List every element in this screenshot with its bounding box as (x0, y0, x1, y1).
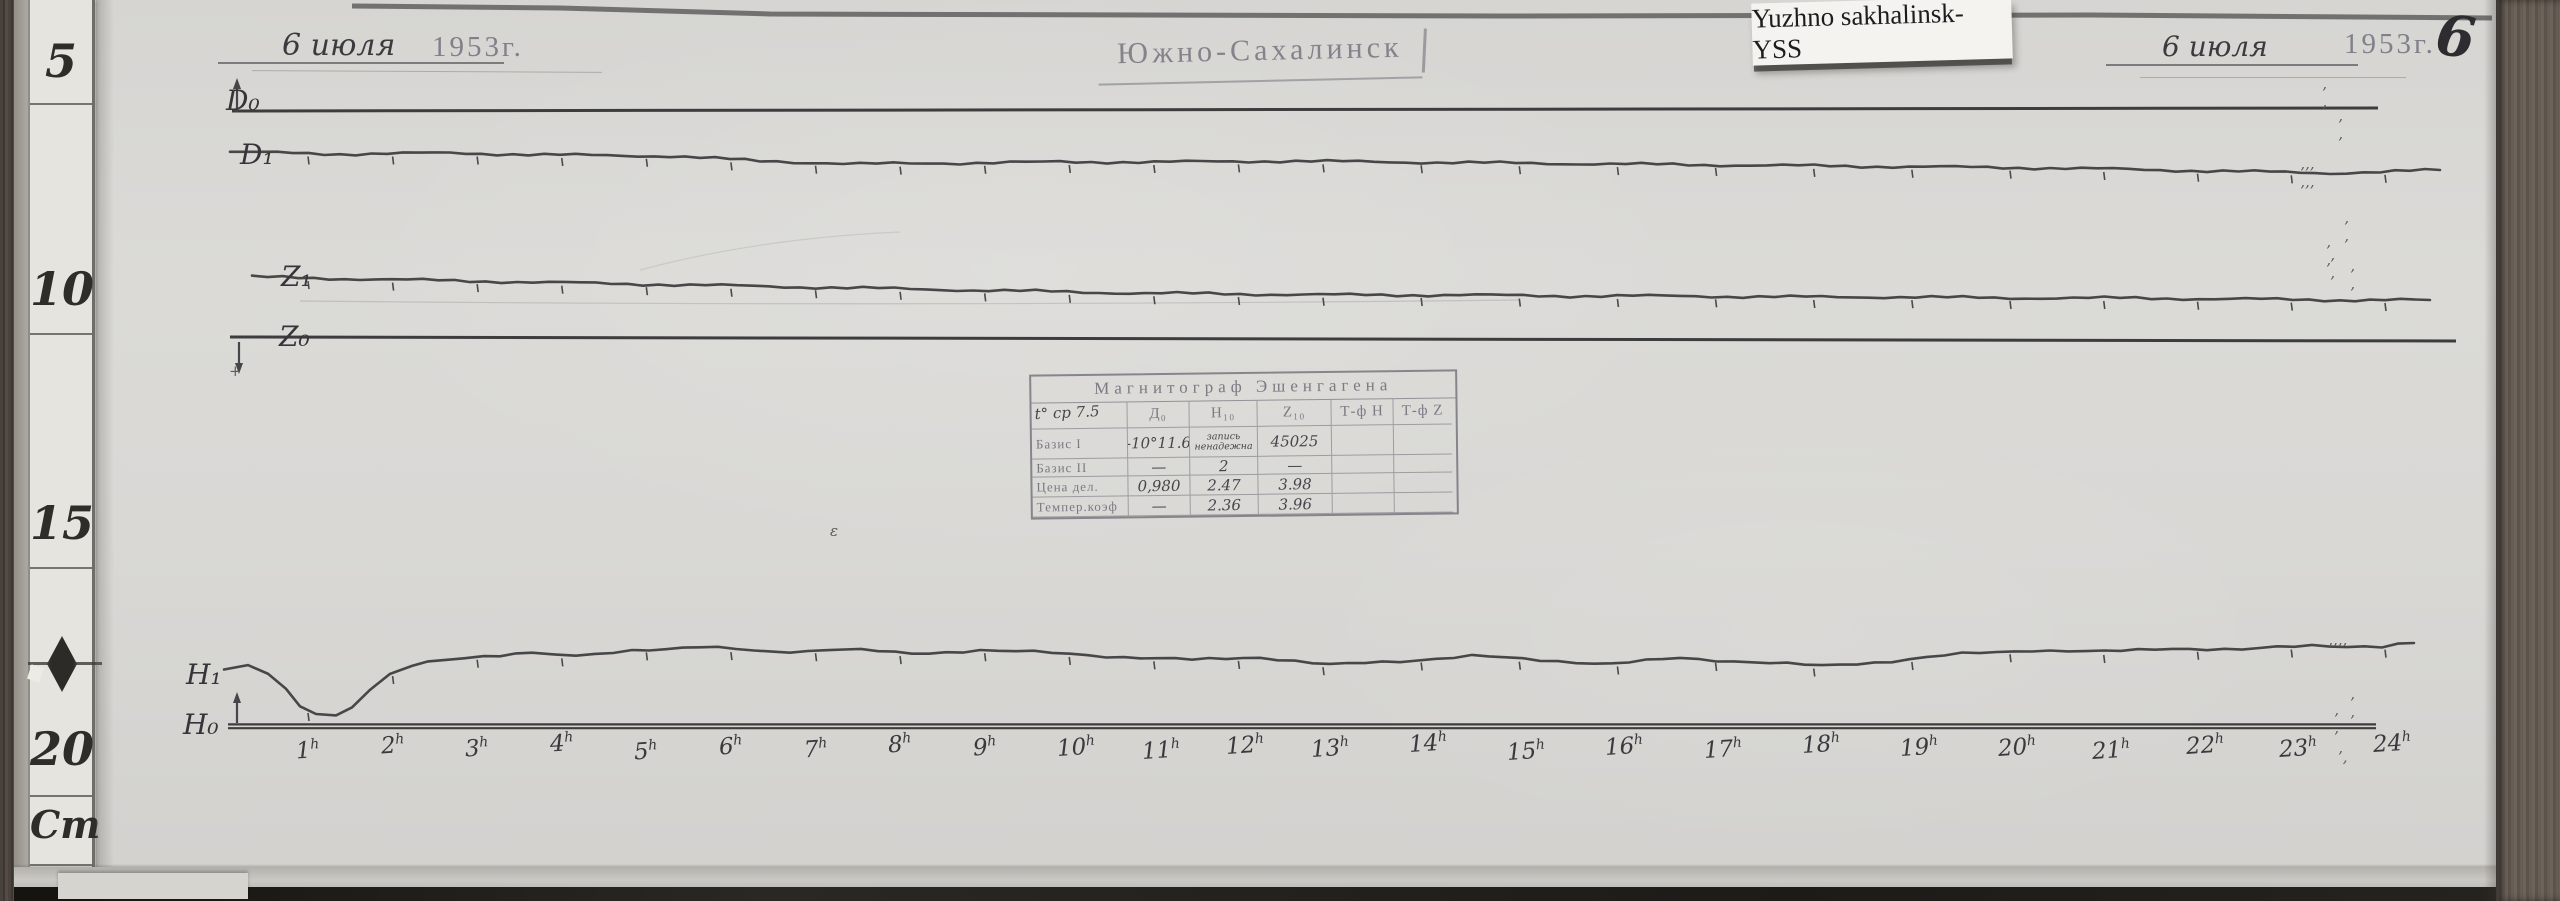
hour-tick (2104, 655, 2105, 663)
hour-tick (477, 660, 478, 668)
hour-label-1: 1h (295, 736, 320, 764)
ruler-division-line (30, 795, 92, 797)
hour-tick (900, 167, 901, 175)
hour-tick (1716, 168, 1717, 176)
date-right: 6 июля (2162, 30, 2268, 63)
hour-tick (1069, 657, 1070, 665)
hour-tick (1814, 669, 1815, 677)
hour-label-11: 11h (1141, 736, 1181, 765)
ruler-mark-20: 20 (30, 722, 92, 776)
hour-tick (816, 653, 817, 661)
trace-label-d1: D₁ (240, 138, 274, 171)
table-cell-3-2: 3.96 (1259, 494, 1333, 515)
wood-table-right (2496, 0, 2560, 901)
hour-tick (1716, 663, 1717, 671)
calibration-table: Магнитограф Эшенгагена Д₀Н₁₀Z₁₀Т-ф НТ-ф … (1029, 369, 1459, 519)
table-cell-3-0: — (1129, 496, 1191, 517)
paper-crease (640, 232, 900, 270)
stamp-frame-bracket (1414, 28, 1427, 72)
table-cell-0-3 (1332, 425, 1394, 456)
pen-mark-1: ’ ’ (2338, 116, 2343, 152)
table-col-header-1: Н₁₀ (1189, 401, 1257, 428)
hour-tick (2291, 175, 2292, 183)
pen-mark-12: + (229, 362, 242, 380)
hour-label-21: 21h (2091, 736, 2131, 765)
page-number: 6 (2432, 2, 2479, 72)
cm-ruler: 5 10 15 20 Cm (12, 0, 98, 870)
pen-mark-7: ε (830, 522, 838, 540)
bottom-left-paper-tab (58, 873, 248, 899)
hour-tick (2198, 302, 2199, 310)
hour-label-6: 6h (718, 732, 743, 760)
bottom-gap-shadow (0, 887, 2560, 901)
trace-0 (232, 108, 2378, 111)
year-left: 1953г. (432, 31, 524, 64)
hour-tick (2010, 301, 2011, 309)
hour-tick (2010, 171, 2011, 179)
hour-label-18: 18h (1801, 730, 1841, 759)
table-cell-1-2: — (1258, 456, 1332, 475)
table-cell-0-0: -10°11.6 (1128, 428, 1190, 459)
hour-tick (1519, 662, 1520, 670)
trace-label-h1: H₁ (186, 658, 222, 691)
underline-right-faint (2140, 77, 2406, 78)
hour-label-2: 2h (380, 731, 405, 759)
hour-label-8: 8h (887, 730, 912, 758)
hour-tick (646, 159, 647, 167)
trace-label-z1: Z₁ (281, 260, 312, 293)
hour-tick (646, 652, 647, 660)
ruler-face: 5 10 15 20 Cm (28, 0, 95, 870)
ruler-mark-5: 5 (30, 34, 92, 88)
archive-label-text: Yuzhno sakhalinsk-YSS (1751, 0, 2013, 66)
hour-tick (393, 157, 394, 165)
table-row-label-3: Темпер.коэф (1033, 496, 1129, 517)
hour-tick (816, 166, 817, 174)
hour-tick (1617, 667, 1618, 675)
hour-tick (1421, 663, 1422, 671)
hour-tick (477, 284, 478, 292)
trace-2 (252, 276, 2430, 302)
table-row-label-0: Базис I (1032, 428, 1128, 459)
under-sheet-edge (14, 867, 2498, 889)
hour-label-23: 23h (2278, 734, 2318, 763)
table-cell-3-4 (1395, 492, 1453, 513)
hour-tick (731, 652, 732, 660)
table-cell-0-1: запись ненадежна (1190, 427, 1258, 458)
hour-tick (1069, 165, 1070, 173)
table-cell-1-1: 2 (1190, 457, 1258, 476)
hour-tick (1912, 170, 1913, 178)
hour-label-22: 22h (2185, 731, 2225, 760)
date-left: 6 июля (282, 28, 395, 63)
hour-tick (562, 286, 563, 294)
hour-tick (985, 653, 986, 661)
hour-tick (2104, 172, 2105, 180)
trace-1 (230, 152, 2440, 174)
table-cell-0-2: 45025 (1258, 426, 1332, 457)
station-stamp: Южно-Сахалинск (1097, 30, 1422, 85)
table-cell-2-1: 2.47 (1190, 475, 1258, 496)
hour-tick (2010, 654, 2011, 662)
hour-label-17: 17h (1703, 735, 1743, 764)
hour-tick (308, 156, 309, 164)
hour-tick (1069, 295, 1070, 303)
hour-label-7: 7h (803, 735, 828, 763)
hour-tick (1238, 297, 1239, 305)
hour-tick (1814, 169, 1815, 177)
table-cell-2-4 (1394, 472, 1452, 493)
ruler-mark-15: 15 (30, 496, 92, 550)
hour-tick (2291, 649, 2292, 657)
table-row-label-2: Цена дел. (1032, 476, 1128, 497)
hour-label-24: 24h (2372, 729, 2412, 758)
hour-tick (1238, 164, 1239, 172)
table-col-header-2: Z₁₀ (1257, 400, 1331, 427)
trace-label-z0: Z₀ (279, 320, 310, 353)
hour-label-20: 20h (1997, 733, 2037, 762)
hour-tick (393, 676, 394, 684)
ruler-unit: Cm (30, 802, 92, 847)
ruler-division-line (30, 333, 92, 335)
magnetogram-scan: 6 июля 1953г. Южно-Сахалинск Yuzhno sakh… (0, 0, 2560, 901)
hour-tick (308, 713, 309, 721)
ruler-shadow (96, 0, 114, 870)
hour-tick (731, 162, 732, 170)
hour-tick (477, 156, 478, 164)
hour-tick (2198, 652, 2199, 660)
hour-tick (2385, 650, 2386, 658)
hour-tick (393, 283, 394, 291)
hour-tick (1519, 166, 1520, 174)
hour-label-4: 4h (549, 729, 574, 757)
table-col-header-0: Д₀ (1127, 402, 1189, 429)
ruler-mark-10: 10 (30, 262, 92, 316)
table-cell-3-3 (1333, 493, 1395, 514)
table-cell-1-4 (1394, 454, 1452, 473)
trace-3 (230, 337, 2456, 341)
table-col-header-4: Т-ф Z (1393, 398, 1451, 425)
table-cell-1-0: — (1128, 458, 1190, 477)
hour-tick (1421, 298, 1422, 306)
table-col-header-3: Т-ф Н (1331, 399, 1393, 426)
table-cell-2-0: 0,980 (1128, 476, 1190, 497)
table-cell-2-3 (1332, 473, 1394, 494)
table-row-label-1: Базис II (1032, 458, 1128, 477)
hour-tick (1323, 667, 1324, 675)
wood-table-left (0, 0, 14, 901)
hour-label-19: 19h (1899, 733, 1939, 762)
hour-label-15: 15h (1506, 737, 1546, 766)
table-cell-2-2: 3.98 (1258, 474, 1332, 495)
hour-label-16: 16h (1605, 732, 1645, 761)
hour-tick (1154, 661, 1155, 669)
hour-label-13: 13h (1310, 734, 1350, 763)
hour-tick (1716, 299, 1717, 307)
table-cell-3-1: 2.36 (1191, 495, 1259, 516)
h0-baseline-arrow-up-icon (233, 692, 241, 703)
hour-tick (1617, 299, 1618, 307)
hour-tick (1421, 165, 1422, 173)
hour-tick (2385, 175, 2386, 183)
hour-tick (562, 658, 563, 666)
underline-right (2106, 64, 2358, 66)
pen-mark-9: ’ ’ (2350, 694, 2355, 730)
hour-tick (2198, 174, 2199, 182)
hour-tick (900, 656, 901, 664)
hour-label-14: 14h (1408, 729, 1448, 758)
hour-tick (2291, 303, 2292, 311)
hour-tick (1912, 662, 1913, 670)
hour-tick (985, 293, 986, 301)
trace-label-h0: H₀ (183, 708, 219, 741)
table-cell-1-3 (1332, 455, 1394, 474)
hour-tick (1912, 300, 1913, 308)
pen-mark-8: ’’’’ (2328, 640, 2347, 658)
trace-label-d0: D₀ (226, 84, 260, 117)
hour-label-12: 12h (1226, 731, 1266, 760)
pen-mark-3: ’ ’ (2344, 218, 2349, 254)
ruler-division-line (30, 103, 92, 105)
hour-tick (1617, 167, 1618, 175)
hour-tick (2104, 301, 2105, 309)
trace-4 (224, 643, 2414, 715)
hour-tick (1154, 296, 1155, 304)
ruler-division-line (30, 567, 92, 569)
hour-tick (1154, 165, 1155, 173)
archive-label: Yuzhno sakhalinsk-YSS (1751, 0, 2013, 66)
hour-tick (1814, 300, 1815, 308)
hour-tick (985, 166, 986, 174)
hour-tick (900, 292, 901, 300)
table-cell-0-4 (1394, 424, 1452, 455)
year-right: 1953г. (2344, 28, 2436, 61)
pen-mark-0: ’ ’ (2322, 84, 2327, 120)
pen-mark-2: ’’’ ’’’ (2300, 164, 2314, 200)
pen-mark-6: ’ ’ (2350, 266, 2355, 302)
hour-label-3: 3h (464, 734, 489, 762)
pen-mark-10: ’ ’ (2334, 710, 2339, 746)
hour-tick (646, 287, 647, 295)
hour-tick (1519, 299, 1520, 307)
upper-sheet-edge (352, 6, 2492, 18)
underline-left (218, 62, 504, 64)
hour-tick (816, 290, 817, 298)
pen-mark-5: ’ ’ (2330, 255, 2335, 291)
hour-tick (2385, 303, 2386, 311)
hour-tick (562, 158, 563, 166)
hour-tick (1238, 661, 1239, 669)
station-stamp-text: Южно-Сахалинск (1117, 31, 1403, 70)
hour-tick (1323, 164, 1324, 172)
paper-crease (300, 300, 1520, 304)
hour-label-9: 9h (972, 733, 997, 761)
pen-mark-11: ’, (2338, 748, 2348, 766)
hour-label-5: 5h (633, 737, 658, 765)
hour-tick (1323, 298, 1324, 306)
hour-label-10: 10h (1056, 733, 1096, 762)
hour-tick (731, 289, 732, 297)
